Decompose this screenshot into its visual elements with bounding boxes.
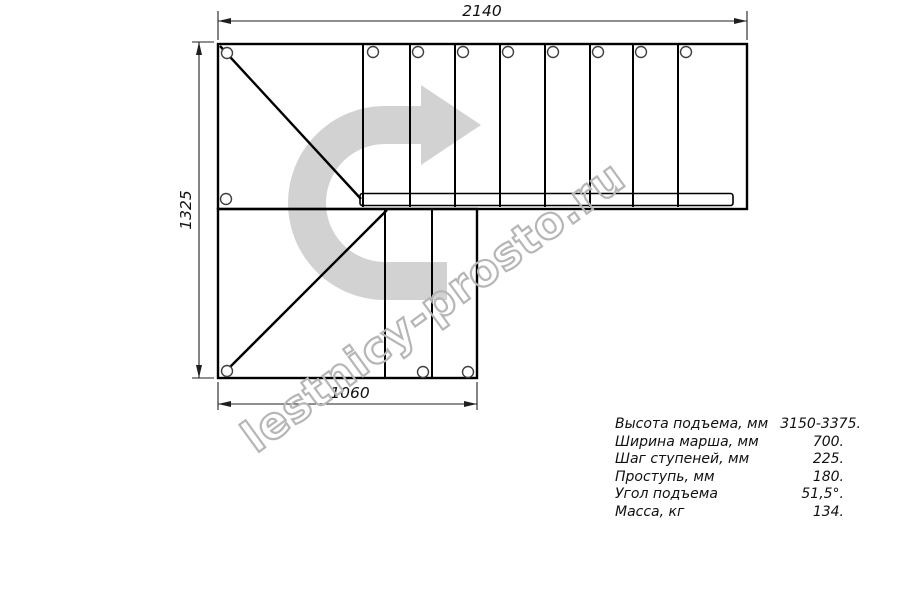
spec-label: Шаг ступеней, мм (615, 451, 749, 469)
spec-label: Проступь, мм (615, 469, 715, 487)
spec-value: 3150-3375. (780, 416, 861, 434)
spec-row-mass: Масса, кг 134. (615, 504, 844, 522)
spec-value: 225. (813, 451, 844, 469)
dim-top-label: 2140 (462, 2, 502, 20)
spec-value: 134. (813, 504, 844, 522)
stair-plan-page: 2140 1325 1060 lestnicy-prosto.ru В (0, 0, 900, 600)
spec-row-height: Высота подъема, мм 3150-3375. (615, 416, 844, 434)
spec-label: Высота подъема, мм (615, 416, 768, 434)
dimension-left (192, 42, 214, 378)
spec-row-flight-width: Ширина марша, мм 700. (615, 434, 844, 452)
spec-value: 180. (813, 469, 844, 487)
dim-left-label: 1325 (177, 190, 195, 229)
spec-label: Угол подъема (615, 486, 718, 504)
upper-step-lines (363, 44, 678, 207)
spec-label: Ширина марша, мм (615, 434, 759, 452)
spec-row-angle: Угол подъема 51,5°. (615, 486, 844, 504)
specs-table: Высота подъема, мм 3150-3375. Ширина мар… (615, 416, 844, 521)
spec-row-step-pitch: Шаг ступеней, мм 225. (615, 451, 844, 469)
spec-value: 51,5°. (801, 486, 844, 504)
spec-value: 700. (813, 434, 844, 452)
spec-row-tread: Проступь, мм 180. (615, 469, 844, 487)
spec-label: Масса, кг (615, 504, 684, 522)
